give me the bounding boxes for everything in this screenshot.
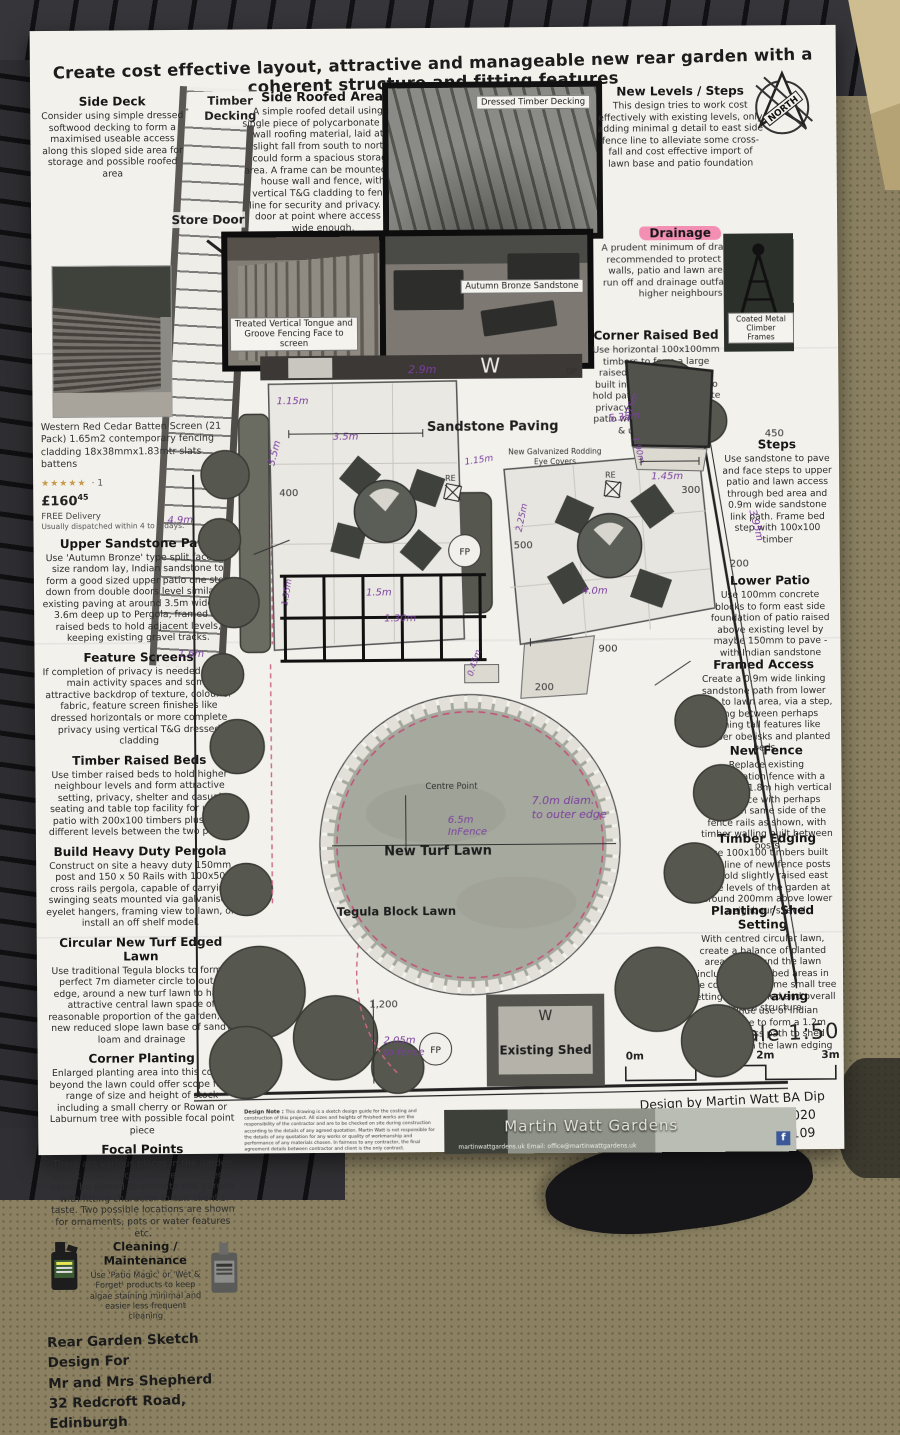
design-sheet: Create cost effective layout, attractive… — [30, 25, 845, 1155]
sandstone-paving-label: Sandstone Paving — [427, 419, 559, 435]
shoe-shadow — [838, 1058, 900, 1178]
dim: 1.6m — [178, 649, 204, 660]
dim: to fence — [384, 1047, 425, 1058]
house-window-label: W — [480, 353, 500, 377]
south-fence-line2 — [194, 1088, 788, 1101]
dim: 200 — [535, 682, 554, 693]
garden-plan-drawing: W 2.9m DP W Existin — [92, 340, 798, 1107]
diam-label: to outer edge — [532, 808, 607, 822]
corner-raised-bed — [626, 361, 713, 448]
facebook-icon: f — [776, 1131, 790, 1145]
martin-watt-banner: Martin Watt Gardens martinwattgardens.uk… — [444, 1107, 796, 1154]
fp-label: FP — [430, 1046, 441, 1056]
section-new-levels: New Levels / Steps This design tries to … — [596, 83, 765, 169]
section-heading: Side Deck — [38, 94, 186, 109]
pink-highlight: Drainage — [639, 226, 721, 241]
new-turf-lawn-label: New Turf Lawn — [384, 844, 492, 860]
dim: 200 — [730, 559, 749, 570]
centre-point-label: Centre Point — [425, 782, 478, 792]
diam-label: 7.0m diam. — [532, 794, 595, 807]
framed-access-path — [520, 636, 594, 699]
star-rating-icons: ★★★★★ — [41, 479, 86, 489]
rattan-sofa-shape — [393, 270, 463, 311]
climber-frame-photo: Coated Metal Climber Frames — [723, 233, 794, 352]
section-heading: Cleaning / Maintenance — [86, 1239, 204, 1268]
rattan-table-shape — [480, 300, 557, 337]
west-boundary-line — [193, 475, 198, 1097]
dim: 1.5m — [366, 587, 392, 598]
tegula-label: Tegula Block Lawn — [337, 904, 456, 919]
dim: 1.15m — [276, 396, 308, 407]
dim: 500 — [514, 540, 533, 551]
dim-2-9m: 2.9m — [408, 363, 436, 376]
dim: 400 — [279, 488, 298, 499]
section-cleaning: Cleaning / Maintenance Use 'Patio Magic'… — [47, 1239, 240, 1322]
banner-contact: martinwattgardens.uk Email: office@marti… — [458, 1142, 636, 1150]
dim: 450 — [765, 428, 784, 439]
dim: 900 — [598, 644, 617, 655]
section-heading: Focal Points — [46, 1142, 238, 1158]
shed-window-label: W — [538, 1008, 552, 1024]
re-label: RE — [605, 471, 616, 480]
address-line: Rear Garden Sketch Design For — [47, 1328, 240, 1374]
dim: 1.30m — [384, 613, 416, 624]
cleaning-text: Cleaning / Maintenance Use 'Patio Magic'… — [86, 1239, 205, 1321]
dim: 300 — [681, 485, 700, 496]
wet-and-forget-bottle-icon — [209, 1239, 239, 1295]
address-line: 32 Redcroft Road, Edinburgh — [49, 1389, 242, 1435]
section-body: Use 'Patio Magic' or 'Wet & Forget' prod… — [86, 1269, 204, 1321]
dim: 3.95m — [746, 509, 765, 543]
sandstone-photo-caption: Autumn Bronze Sandstone — [460, 279, 583, 294]
design-note-label: Design Note : — [244, 1109, 286, 1115]
house-door — [288, 358, 332, 378]
dim: 4.0m — [582, 586, 608, 597]
rodding-label: Eye Covers — [534, 457, 576, 466]
dim: 2.05m — [383, 1035, 415, 1046]
decking-photo: Dressed Timber Decking — [382, 81, 603, 241]
infence-label: 6.5m — [448, 815, 474, 826]
dim: 1.15m — [464, 454, 494, 468]
section-side-deck: Side Deck Consider using simple dressed … — [38, 94, 187, 180]
project-address: Rear Garden Sketch Design For Mr and Mrs… — [47, 1328, 242, 1435]
section-heading: New Levels / Steps — [596, 83, 764, 98]
section-body: This design tries to work cost effective… — [596, 99, 765, 169]
section-heading: Side Roofed Area — [242, 88, 402, 104]
design-note-text: This drawing is a sketch design guide fo… — [244, 1109, 435, 1152]
section-body: Consider using simple dressed softwood d… — [38, 110, 187, 180]
section-focal-points: Focal Points There are various places in… — [46, 1142, 239, 1240]
banner-title: Martin Watt Gardens — [504, 1116, 678, 1135]
fp-label: FP — [459, 548, 470, 558]
decking-photo-caption: Dressed Timber Decking — [476, 95, 590, 110]
patio-magic-bottle-icon — [47, 1240, 81, 1292]
existing-shed-label: Existing Shed — [499, 1043, 591, 1058]
section-side-roofed-area: Side Roofed Area A simple roofed detail … — [242, 88, 403, 235]
section-body: There are various places in the garden l… — [46, 1158, 239, 1240]
design-note: Design Note : This drawing is a sketch d… — [244, 1108, 440, 1154]
dim: 1.45m — [651, 471, 683, 482]
infence-label: InFence — [448, 827, 487, 838]
downpipe-label: DP — [566, 367, 577, 376]
scale-tick: 3m — [821, 1049, 839, 1061]
section-body: A simple roofed detail using a single pi… — [242, 105, 403, 235]
climber-photo-caption: Coated Metal Climber Frames — [728, 312, 794, 344]
price-main: £160 — [41, 495, 77, 510]
price-sup: 45 — [77, 493, 88, 502]
dim: 4.9m — [167, 515, 193, 526]
re-label: RE — [445, 474, 456, 483]
rodding-label: New Galvanized Rodding — [508, 447, 602, 457]
